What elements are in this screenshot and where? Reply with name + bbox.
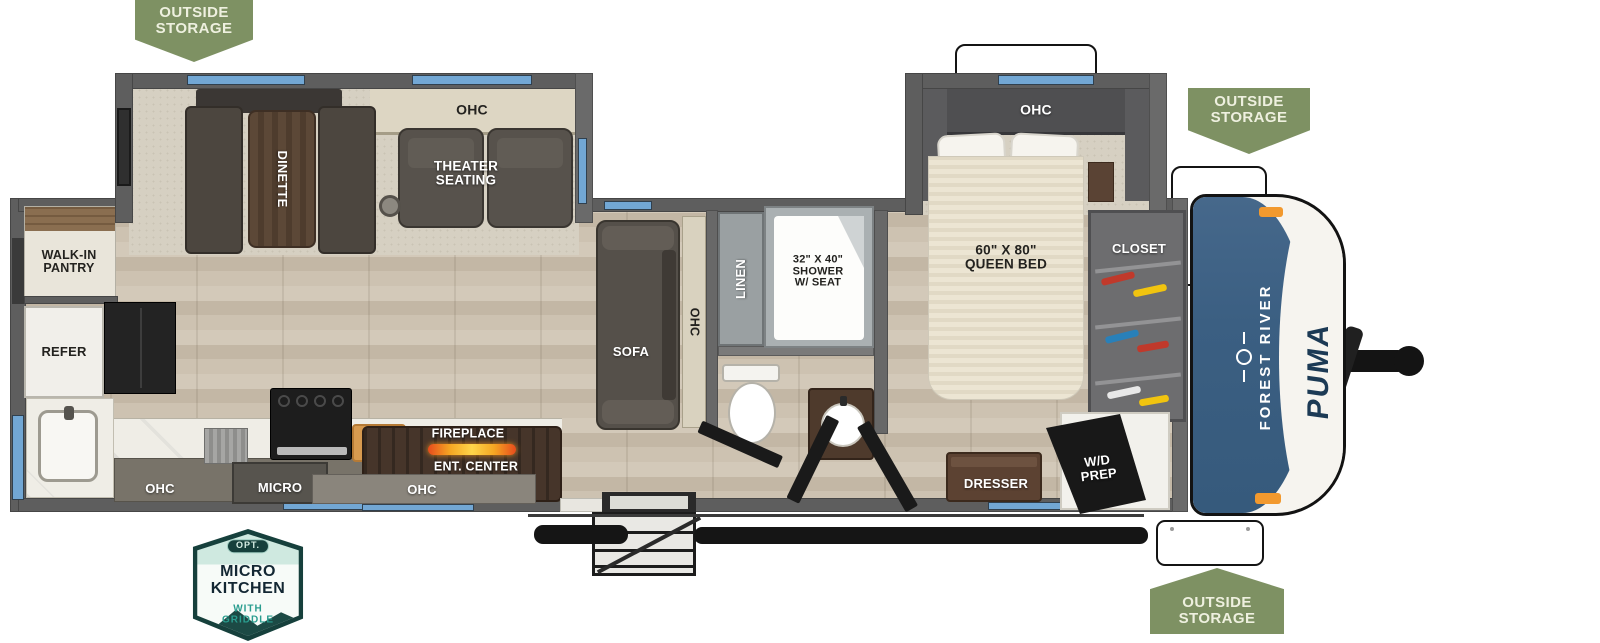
- window-strip: [187, 75, 305, 85]
- linen-label: LINEN: [734, 259, 748, 299]
- dinette-label: DINETTE: [275, 150, 289, 207]
- hitch-coupler-icon: [1394, 346, 1424, 376]
- outside-storage-badge-text: OUTSIDE STORAGE: [1179, 595, 1256, 627]
- sofa-back: [662, 250, 676, 400]
- bedroom-ohc-wing: [1125, 89, 1149, 201]
- slide-end-window: [117, 108, 131, 186]
- fireplace-flame-icon: [428, 444, 516, 455]
- walk-in-pantry-label: WALK-IN PANTRY: [42, 249, 97, 276]
- marker-light-icon: [1255, 493, 1281, 504]
- micro-kitchen-subtitle: WITH GRIDDLE: [222, 604, 274, 625]
- faucet-icon: [64, 406, 74, 420]
- queen-bed-label: 60" X 80" QUEEN BED: [965, 244, 1047, 273]
- dinette-bench: [318, 106, 376, 254]
- cooktop: [270, 388, 352, 460]
- faucet-icon: [840, 396, 847, 406]
- forest-river-logo-icon: [1236, 332, 1252, 382]
- entry-door-glass: [610, 496, 688, 509]
- hanging-clothes-icon: [1139, 394, 1170, 406]
- pantry-shelf: [25, 207, 115, 231]
- screw-icon: [1170, 527, 1174, 531]
- awning-arm: [694, 527, 1148, 544]
- burner-icon: [314, 395, 326, 407]
- forest-river-row: FOREST RIVER: [1236, 284, 1274, 431]
- outside-storage-badge-text: OUTSIDE STORAGE: [1211, 94, 1288, 126]
- theater-seating-label: THEATER SEATING: [434, 160, 498, 189]
- fireplace-label: FIREPLACE: [432, 427, 505, 440]
- wd-prep-label: W/D PREP: [1078, 452, 1117, 484]
- micro-kitchen-title: MICRO KITCHEN: [211, 564, 286, 598]
- micro-kitchen-badge: OPT. MICRO KITCHEN WITH GRIDDLE: [184, 529, 312, 641]
- hanging-clothes-icon: [1133, 284, 1168, 298]
- slide-ohc-label: OHC: [456, 103, 488, 118]
- bedroom-ohc-label: OHC: [1020, 103, 1052, 118]
- sofa-label: SOFA: [613, 345, 649, 359]
- burner-icon: [332, 395, 344, 407]
- stove-handle: [277, 447, 347, 455]
- sofa-ohc-label: OHC: [687, 308, 700, 336]
- toilet: [722, 364, 780, 382]
- dinette-bench: [185, 106, 243, 254]
- storage-door-outline-bottom: [1156, 520, 1264, 566]
- entry-door: [602, 492, 696, 514]
- rear-bumper: [534, 525, 628, 544]
- tall-cabinet: [104, 302, 176, 394]
- hanging-clothes-icon: [1137, 340, 1170, 352]
- griddle: [204, 428, 248, 464]
- cabinet-seam: [140, 308, 142, 387]
- burner-icon: [278, 395, 290, 407]
- nightstand: [1088, 162, 1114, 202]
- closet-shelf: [1095, 317, 1181, 330]
- sofa-arm: [602, 226, 674, 250]
- bed-slide-right-wall: [1149, 73, 1167, 215]
- forest-river-text: FOREST RIVER: [1258, 284, 1274, 431]
- entry-steps: [592, 512, 696, 576]
- window-strip: [998, 75, 1094, 85]
- closet-shelf: [1095, 261, 1181, 274]
- puma-text: PUMA: [1303, 321, 1335, 422]
- refer-label: REFER: [41, 345, 86, 359]
- awning-rail: [528, 514, 1144, 517]
- bath-right-wall: [874, 210, 888, 434]
- floorplan-canvas: WALK-IN PANTRY REFER OHC MICRO FIREPLACE…: [0, 0, 1600, 643]
- kitchen-ohc-label: OHC: [145, 482, 175, 496]
- closet-label: CLOSET: [1112, 242, 1166, 256]
- dresser-label: DRESSER: [964, 477, 1028, 491]
- ent-center-label: ENT. CENTER: [434, 460, 518, 473]
- dresser-top: [951, 457, 1037, 467]
- rear-vent: [12, 238, 24, 304]
- bath-left-wall: [706, 210, 718, 434]
- outside-storage-badge: OUTSIDE STORAGE: [1150, 568, 1284, 634]
- outside-storage-badge: OUTSIDE STORAGE: [135, 0, 253, 62]
- window-strip: [604, 201, 652, 210]
- galley-ohc-label: OHC: [407, 483, 437, 497]
- closet-shelf: [1095, 373, 1181, 386]
- window-strip: [412, 75, 532, 85]
- outside-storage-badge-text: OUTSIDE STORAGE: [156, 5, 233, 37]
- shower-label: 32" X 40" SHOWER W/ SEAT: [793, 255, 844, 290]
- opt-tag: OPT.: [227, 539, 269, 553]
- hanging-clothes-icon: [1107, 386, 1142, 400]
- entry-threshold: [560, 498, 606, 512]
- kitchen-sink: [38, 410, 98, 482]
- burner-icon: [296, 395, 308, 407]
- sofa: [596, 220, 680, 430]
- marker-light-icon: [1259, 207, 1283, 217]
- window-strip: [362, 504, 474, 511]
- queen-bed: [928, 156, 1084, 400]
- cupholder-icon: [379, 195, 401, 217]
- screw-icon: [1246, 527, 1250, 531]
- micro-label: MICRO: [258, 481, 302, 495]
- window-strip: [578, 138, 587, 204]
- outside-storage-badge: OUTSIDE STORAGE: [1188, 88, 1310, 154]
- front-cap: FOREST RIVER PUMA: [1190, 194, 1346, 516]
- theater-seat: [487, 128, 573, 228]
- window-strip: [12, 415, 24, 500]
- seat-cushion: [497, 138, 563, 168]
- sofa-arm: [602, 400, 674, 424]
- hanging-clothes-icon: [1105, 329, 1140, 344]
- hanging-clothes-icon: [1101, 271, 1136, 286]
- bed-slide-left-wall: [905, 73, 923, 215]
